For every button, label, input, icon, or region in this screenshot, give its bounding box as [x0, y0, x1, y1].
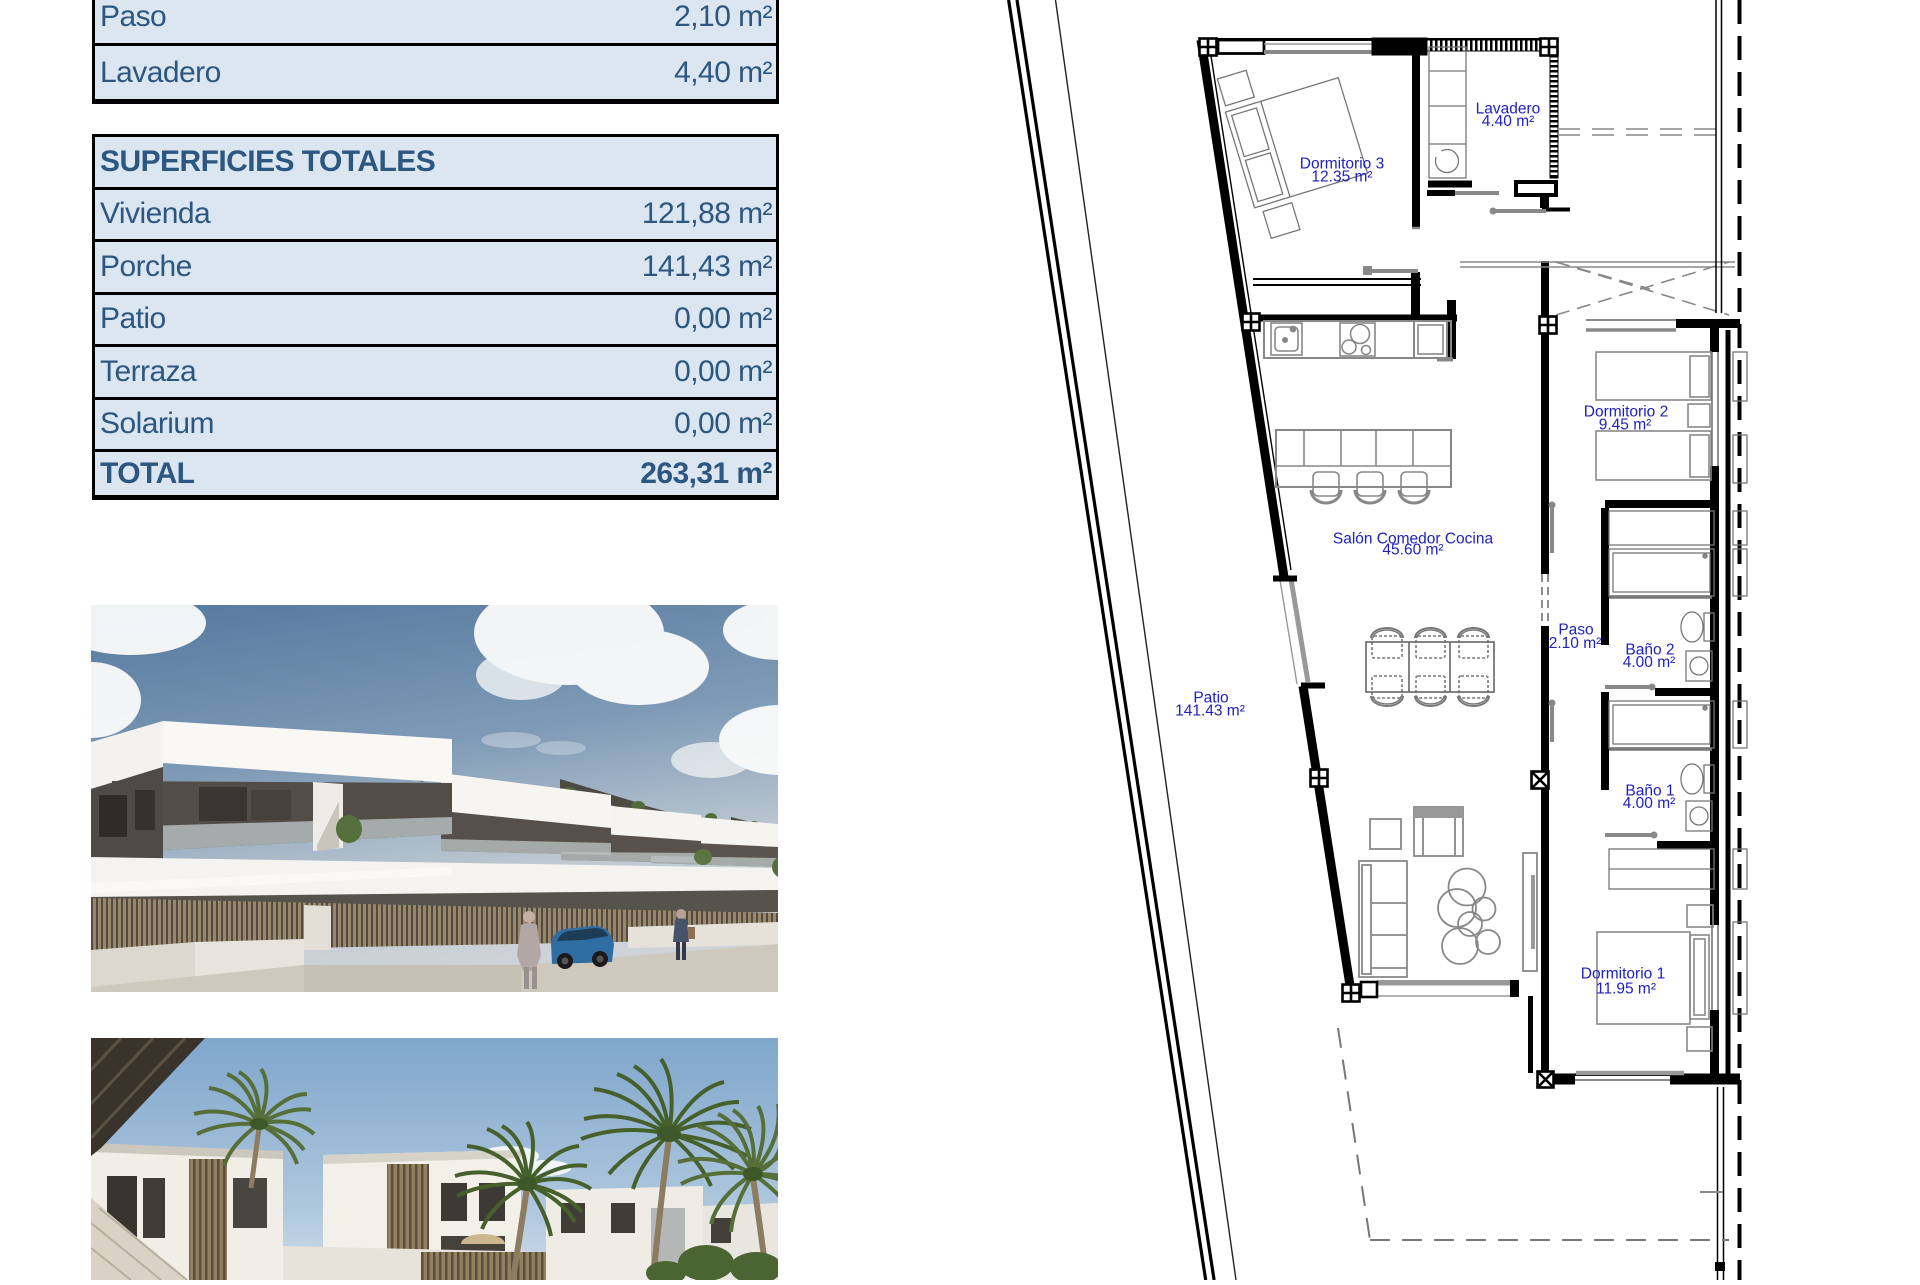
svg-text:4.00 m²: 4.00 m² — [1623, 654, 1676, 671]
svg-text:11.95 m²: 11.95 m² — [1596, 981, 1656, 998]
svg-text:2.10 m²: 2.10 m² — [1549, 635, 1602, 652]
svg-text:12.35 m²: 12.35 m² — [1311, 169, 1372, 186]
svg-text:4.00 m²: 4.00 m² — [1623, 795, 1676, 812]
svg-text:45.60 m²: 45.60 m² — [1382, 542, 1443, 559]
svg-text:9.45 m²: 9.45 m² — [1599, 417, 1652, 434]
svg-text:4.40 m²: 4.40 m² — [1482, 113, 1535, 130]
svg-text:141.43 m²: 141.43 m² — [1175, 703, 1245, 720]
